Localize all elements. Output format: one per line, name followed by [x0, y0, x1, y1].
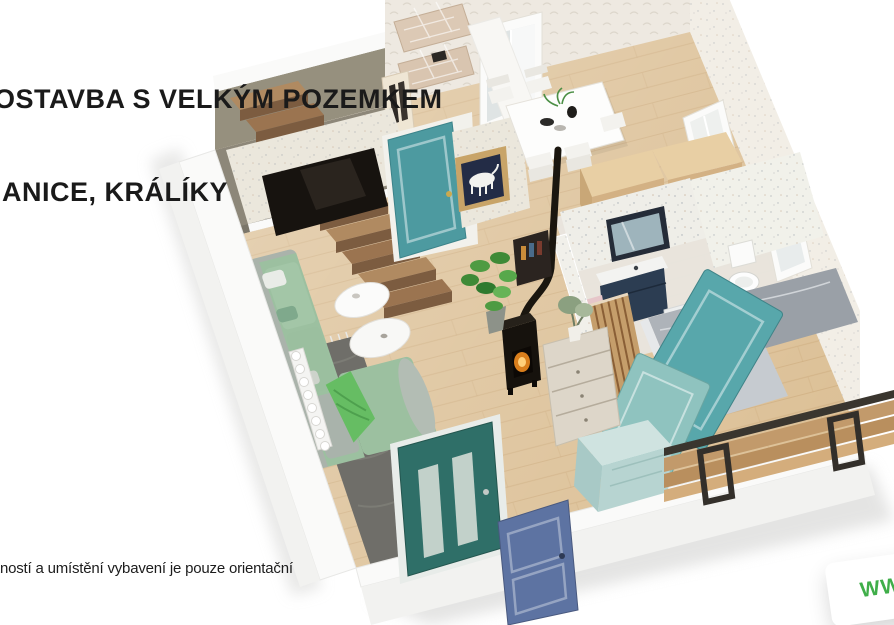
- table-vase: [567, 106, 577, 118]
- watermark-text: WW: [827, 573, 894, 607]
- door-handle: [559, 553, 565, 559]
- real-estate-render: OSTAVBA S VELKÝM POZEMKEM IANICE, KRÁLÍK…: [0, 0, 894, 625]
- blue-panel-door: [498, 500, 578, 625]
- door-handle: [483, 489, 489, 495]
- bar-shelf: [513, 230, 552, 286]
- candle: [381, 334, 388, 338]
- faucet: [634, 266, 638, 270]
- disclaimer-text: tností a umístění vybavení je pouze orie…: [0, 560, 293, 577]
- door-handle: [446, 191, 452, 197]
- entry-glass-door: [398, 422, 502, 576]
- table-bowl: [540, 118, 554, 126]
- title-line-2: IANICE, KRÁLÍKY: [0, 177, 443, 208]
- listing-title: OSTAVBA S VELKÝM POZEMKEM IANICE, KRÁLÍK…: [0, 22, 443, 239]
- title-line-1: OSTAVBA S VELKÝM POZEMKEM: [0, 84, 443, 115]
